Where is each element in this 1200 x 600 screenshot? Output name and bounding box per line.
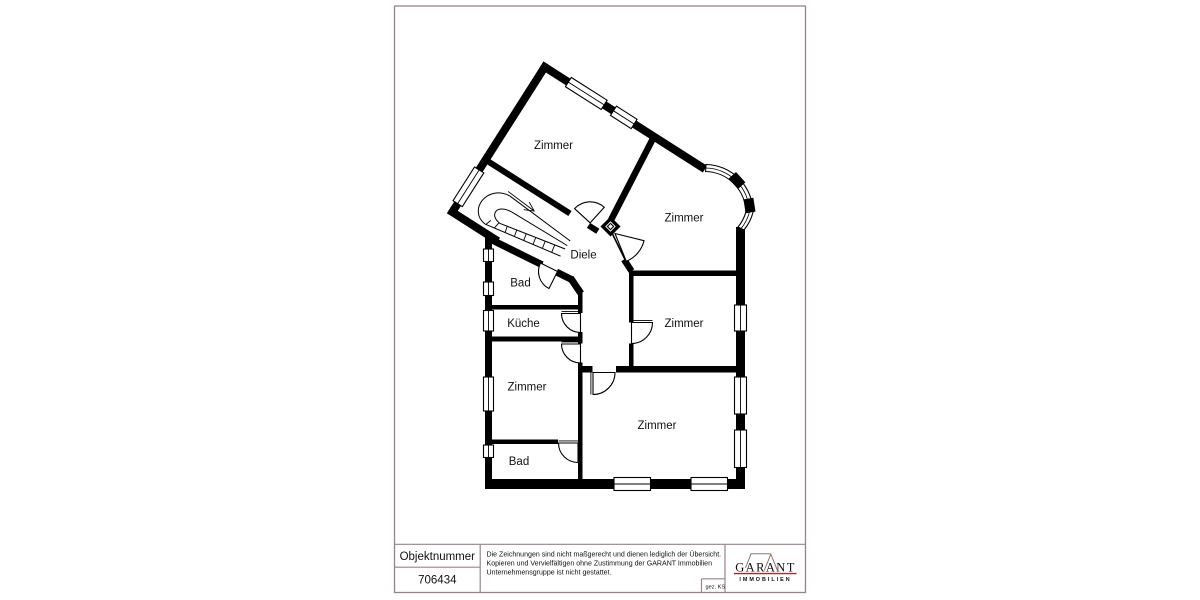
svg-text:Zimmer: Zimmer bbox=[508, 382, 547, 394]
svg-text:706434: 706434 bbox=[418, 575, 457, 587]
svg-text:Küche: Küche bbox=[507, 318, 540, 330]
svg-text:gez. KS: gez. KS bbox=[706, 585, 726, 591]
svg-text:Objektnummer: Objektnummer bbox=[400, 551, 476, 563]
svg-text:Kopieren und Vervielfältigen o: Kopieren und Vervielfältigen ohne Zustim… bbox=[487, 560, 713, 567]
svg-text:Zimmer: Zimmer bbox=[638, 420, 677, 432]
svg-text:Bad: Bad bbox=[509, 456, 529, 468]
svg-text:Die Zeichnungen sind nicht maß: Die Zeichnungen sind nicht maßgerecht un… bbox=[487, 551, 722, 559]
svg-text:Unternehmensgruppe ist nicht g: Unternehmensgruppe ist nicht gestattet. bbox=[487, 569, 612, 576]
svg-text:Zimmer: Zimmer bbox=[665, 213, 704, 225]
svg-text:Zimmer: Zimmer bbox=[534, 140, 573, 152]
svg-text:Bad: Bad bbox=[510, 278, 530, 290]
svg-text:GARANT: GARANT bbox=[735, 561, 795, 575]
svg-text:Zimmer: Zimmer bbox=[665, 318, 704, 330]
svg-text:IMMOBILIEN: IMMOBILIEN bbox=[739, 577, 791, 583]
svg-text:Diele: Diele bbox=[570, 250, 596, 262]
